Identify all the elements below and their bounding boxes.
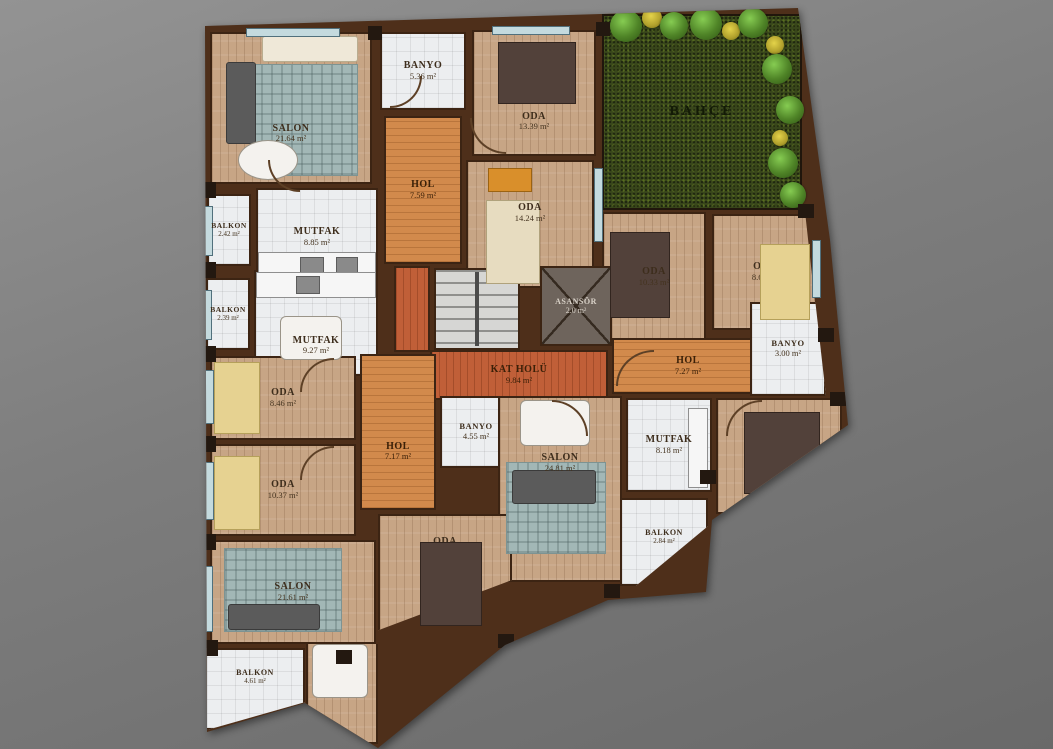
window bbox=[205, 462, 214, 520]
room-balkon-bottomleft: BALKON4.61 m² bbox=[205, 648, 305, 730]
room-balkon-left2: BALKON2.39 m² bbox=[206, 278, 250, 350]
bush-icon bbox=[738, 8, 768, 38]
bush-icon bbox=[610, 10, 642, 42]
wall-pier bbox=[202, 436, 216, 452]
window bbox=[246, 28, 340, 37]
room-label: BALKON4.61 m² bbox=[207, 650, 303, 728]
room-label: ASANSÖR2.0 m² bbox=[542, 268, 610, 344]
bed-icon bbox=[420, 542, 482, 626]
stove-icon bbox=[296, 276, 320, 294]
room-label: BALKON2.84 m² bbox=[622, 500, 706, 584]
kitchen-table-icon bbox=[280, 316, 342, 360]
room-label: KAT HOLÜ9.84 m² bbox=[432, 352, 606, 398]
window bbox=[205, 370, 214, 424]
stair-handrail bbox=[475, 272, 479, 346]
wall-pier bbox=[596, 22, 610, 36]
wall-pier bbox=[202, 640, 218, 656]
bush-icon bbox=[660, 12, 688, 40]
window bbox=[492, 26, 570, 35]
room-label: BALKON2.42 m² bbox=[209, 196, 249, 264]
bush-icon bbox=[766, 36, 784, 54]
sofa-icon bbox=[228, 604, 320, 630]
room-label: HOL7.17 m² bbox=[362, 356, 434, 508]
window bbox=[204, 206, 213, 256]
room-label: BALKON2.39 m² bbox=[208, 280, 248, 348]
bed-icon bbox=[498, 42, 576, 104]
wall-pier bbox=[368, 26, 382, 40]
wall-pier bbox=[604, 584, 620, 598]
wall-pier bbox=[202, 182, 216, 198]
room-kat-holu-strip bbox=[394, 266, 430, 352]
room-label: HOL7.59 m² bbox=[386, 118, 460, 262]
sofa-icon bbox=[262, 36, 358, 62]
wall-pier bbox=[202, 346, 216, 362]
building-footprint: SALON21.64 m² BANYO5.36 m² ODA13.39 m² B… bbox=[0, 0, 1053, 749]
wall-pier bbox=[498, 634, 514, 648]
screenshot-root: { "plan_title": "Kat Planı", "palette": … bbox=[0, 0, 1053, 749]
sofa-icon bbox=[226, 62, 256, 144]
desk-icon bbox=[488, 168, 532, 192]
bed-icon bbox=[610, 232, 670, 318]
room-balkon-left1: BALKON2.42 m² bbox=[207, 194, 251, 266]
room-hol-upper: HOL7.59 m² bbox=[384, 116, 462, 264]
bush-icon bbox=[690, 8, 722, 40]
room-asansor-elevator: ASANSÖR2.0 m² bbox=[540, 266, 612, 346]
bed-icon bbox=[214, 362, 260, 434]
bush-icon bbox=[776, 96, 804, 124]
sofa-icon bbox=[512, 470, 596, 504]
wall-pier bbox=[336, 650, 352, 664]
bush-icon bbox=[762, 54, 792, 84]
wall-pier bbox=[202, 534, 216, 550]
wall-pier bbox=[798, 204, 814, 218]
bed-icon bbox=[486, 200, 540, 284]
bush-icon bbox=[642, 8, 662, 28]
room-kat-holu: KAT HOLÜ9.84 m² bbox=[430, 350, 608, 400]
wall-pier bbox=[202, 262, 216, 278]
window bbox=[594, 168, 603, 242]
floor-plan: SALON21.64 m² BANYO5.36 m² ODA13.39 m² B… bbox=[0, 0, 1053, 749]
bed-icon bbox=[214, 456, 260, 530]
wall-pier bbox=[830, 392, 846, 406]
room-balkon-bottomright: BALKON2.84 m² bbox=[620, 498, 708, 586]
wall-pier bbox=[700, 470, 716, 484]
window bbox=[812, 240, 821, 298]
window bbox=[203, 290, 212, 340]
bush-icon bbox=[768, 148, 798, 178]
bush-icon bbox=[772, 130, 788, 146]
room-hol-lower: HOL7.17 m² bbox=[360, 354, 436, 510]
window bbox=[204, 566, 213, 632]
wall-pier bbox=[818, 328, 834, 342]
bed-icon bbox=[760, 244, 810, 320]
